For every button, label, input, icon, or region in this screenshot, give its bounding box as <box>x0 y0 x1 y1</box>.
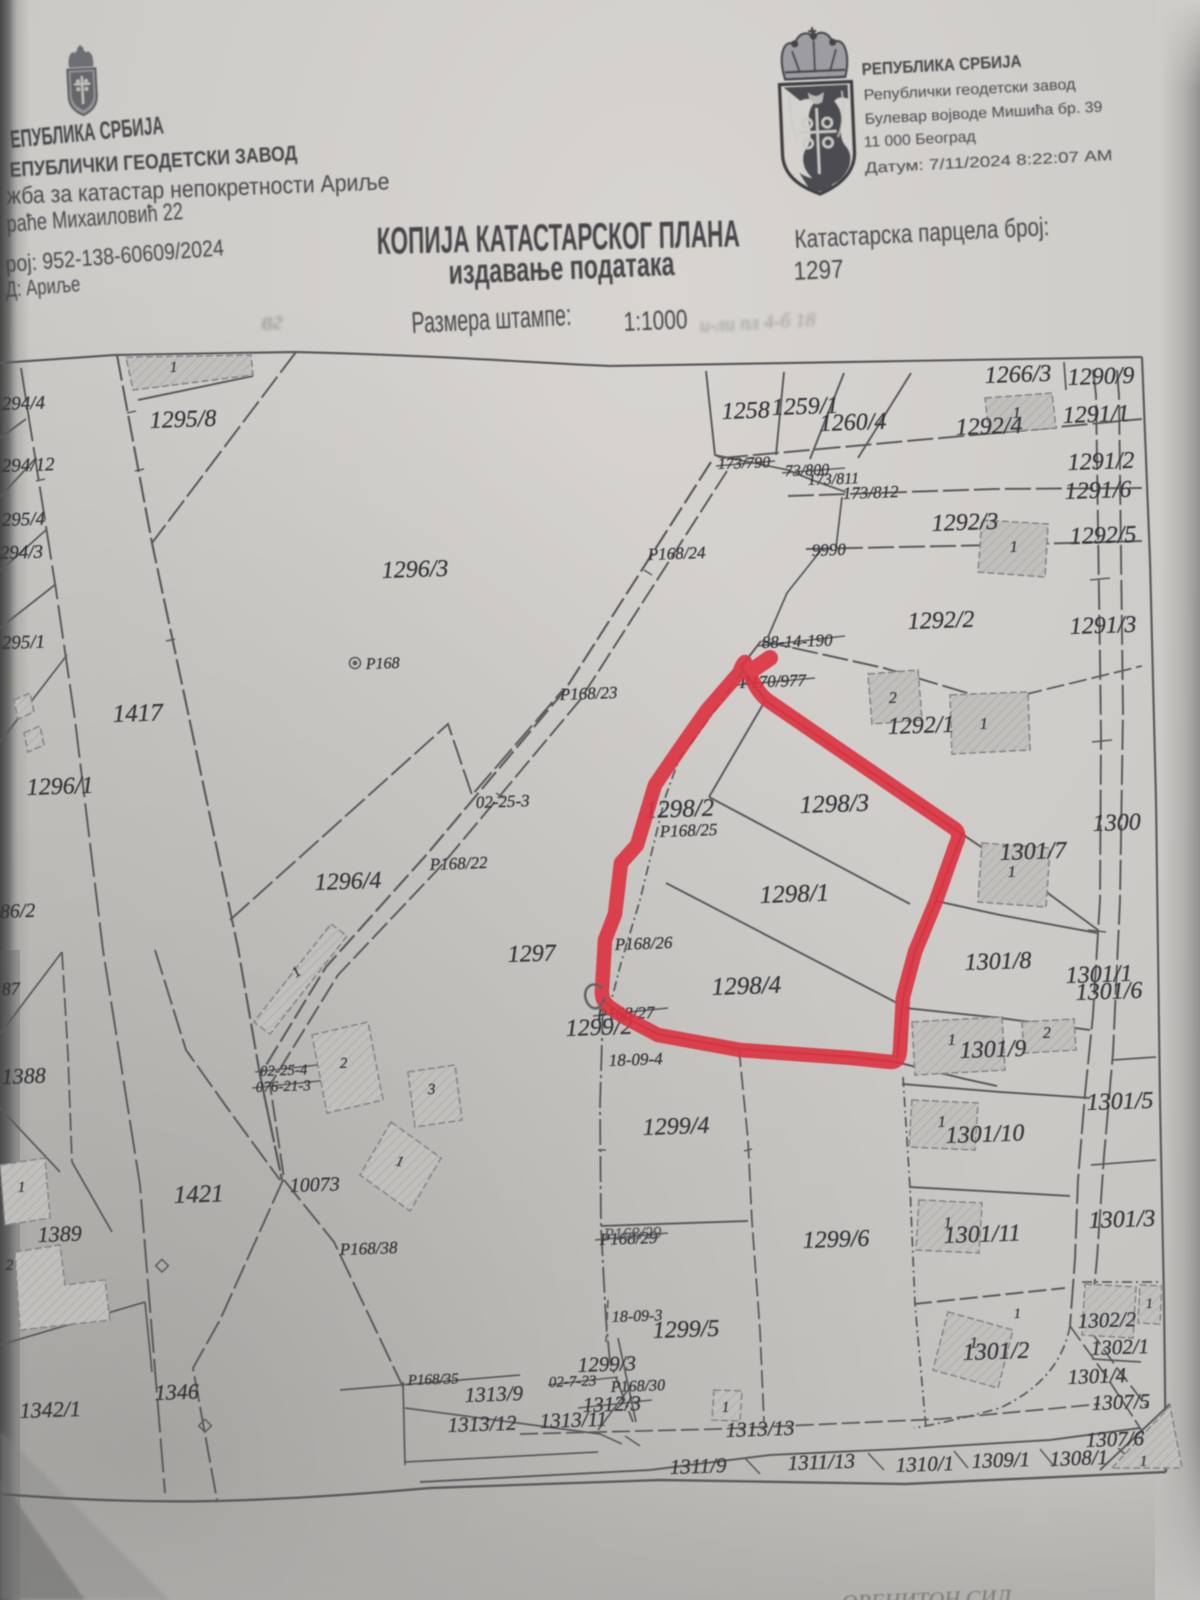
svg-text:2: 2 <box>1043 1025 1052 1042</box>
svg-text:1292/3: 1292/3 <box>931 509 999 537</box>
svg-text:173/812: 173/812 <box>842 482 899 503</box>
svg-text:1313/13: 1313/13 <box>725 1416 795 1442</box>
svg-text:P168/22: P168/22 <box>428 853 488 874</box>
svg-text:1260/4: 1260/4 <box>819 409 887 437</box>
svg-text:1301/6: 1301/6 <box>1075 978 1143 1006</box>
svg-text:1313/9: 1313/9 <box>464 1381 524 1407</box>
svg-text:294/4: 294/4 <box>1 392 45 415</box>
svg-text:02-25-4: 02-25-4 <box>260 1062 309 1080</box>
svg-text:1389: 1389 <box>37 1220 82 1247</box>
svg-text:1: 1 <box>970 1335 979 1352</box>
svg-text:1297: 1297 <box>507 940 557 968</box>
svg-text:295/1: 295/1 <box>1 631 45 653</box>
svg-text:1:1000: 1:1000 <box>623 304 688 337</box>
svg-text:2: 2 <box>889 690 898 707</box>
svg-text:1299/6: 1299/6 <box>802 1226 870 1254</box>
svg-text:1291/2: 1291/2 <box>1067 448 1135 476</box>
svg-text:1301/7: 1301/7 <box>999 838 1068 866</box>
svg-text:1291/3: 1291/3 <box>1069 612 1137 640</box>
svg-text:1301/5: 1301/5 <box>1086 1088 1154 1116</box>
svg-text:1298/4: 1298/4 <box>711 972 781 1001</box>
svg-text:1301/3: 1301/3 <box>1088 1206 1156 1234</box>
svg-text:1292/2: 1292/2 <box>907 607 975 635</box>
svg-text:1301/10: 1301/10 <box>945 1120 1025 1149</box>
svg-text:1: 1 <box>1014 1307 1022 1322</box>
svg-text:295/4: 295/4 <box>1 508 45 531</box>
svg-text:1: 1 <box>938 1114 947 1131</box>
svg-text:88-14-190: 88-14-190 <box>761 631 833 652</box>
svg-text:1309/1: 1309/1 <box>971 1447 1030 1473</box>
svg-text:P168/29: P168/29 <box>602 1223 662 1244</box>
svg-text:1311/13: 1311/13 <box>787 1449 855 1475</box>
svg-text:9990: 9990 <box>811 540 846 560</box>
svg-text:86/2: 86/2 <box>0 900 36 923</box>
svg-text:2: 2 <box>6 1258 15 1274</box>
svg-text:1290/9: 1290/9 <box>1067 363 1135 391</box>
svg-text:1388: 1388 <box>1 1062 46 1089</box>
svg-text:173/790: 173/790 <box>718 454 771 473</box>
svg-text:1: 1 <box>1140 1454 1148 1470</box>
svg-text:1: 1 <box>1146 1297 1154 1312</box>
svg-text:P168/26: P168/26 <box>613 933 673 954</box>
svg-text:1292/5: 1292/5 <box>1069 522 1137 550</box>
svg-text:P168/38: P168/38 <box>338 1238 398 1259</box>
svg-text:076-21-3: 076-21-3 <box>256 1078 312 1096</box>
svg-text:1301/4: 1301/4 <box>1067 1363 1127 1389</box>
svg-text:3: 3 <box>427 1082 436 1098</box>
svg-text:1299/4: 1299/4 <box>642 1113 710 1141</box>
svg-text:1296/3: 1296/3 <box>381 556 449 584</box>
svg-text:18-09-4: 18-09-4 <box>608 1049 663 1070</box>
svg-text:02-25-3: 02-25-3 <box>475 791 529 812</box>
svg-text:1: 1 <box>722 1400 730 1416</box>
svg-text:1307/6: 1307/6 <box>1085 1426 1145 1452</box>
svg-text:294/12: 294/12 <box>1 454 55 477</box>
svg-text:1: 1 <box>1008 864 1017 881</box>
svg-text:1301/11: 1301/11 <box>943 1220 1021 1249</box>
svg-text:1307/5: 1307/5 <box>1091 1389 1150 1415</box>
svg-text:1302/2: 1302/2 <box>1077 1307 1137 1333</box>
svg-text:1: 1 <box>1010 539 1019 556</box>
svg-text:1417: 1417 <box>112 699 164 728</box>
svg-text:1: 1 <box>944 1215 953 1232</box>
svg-text:1: 1 <box>948 1032 957 1049</box>
svg-text:1295/8: 1295/8 <box>149 406 217 434</box>
svg-text:10073: 10073 <box>289 1173 340 1197</box>
svg-text:1301/8: 1301/8 <box>964 948 1032 976</box>
svg-text:1421: 1421 <box>173 1180 224 1209</box>
svg-text:1298/1: 1298/1 <box>759 880 829 909</box>
svg-text:1266/3: 1266/3 <box>984 361 1052 389</box>
svg-text:1: 1 <box>18 1180 26 1196</box>
svg-text:1292/1: 1292/1 <box>887 712 955 740</box>
svg-text:1310/1: 1310/1 <box>895 1451 954 1477</box>
svg-text:P168/35: P168/35 <box>407 1371 460 1389</box>
svg-text:294/3: 294/3 <box>0 541 43 563</box>
svg-text:1311/9: 1311/9 <box>669 1453 727 1479</box>
svg-text:1300: 1300 <box>1092 809 1141 837</box>
svg-text:1302/1: 1302/1 <box>1090 1334 1149 1360</box>
svg-text:1296/1: 1296/1 <box>26 773 94 801</box>
svg-text:1299/3: 1299/3 <box>577 1351 636 1377</box>
svg-text:1346: 1346 <box>154 1378 199 1405</box>
svg-text:2: 2 <box>340 1056 349 1072</box>
svg-text:1342/1: 1342/1 <box>19 1396 81 1423</box>
svg-text:1291/6: 1291/6 <box>1064 477 1132 505</box>
svg-text:1258: 1258 <box>721 397 770 425</box>
svg-text:1: 1 <box>170 360 178 376</box>
svg-text:вг: вг <box>260 306 283 336</box>
svg-text:P168/24: P168/24 <box>646 543 706 564</box>
svg-text:P168: P168 <box>365 655 400 673</box>
svg-text:1297: 1297 <box>793 254 844 286</box>
svg-text:1291/1: 1291/1 <box>1062 401 1130 429</box>
svg-text:1296/4: 1296/4 <box>314 868 382 896</box>
svg-text:1301/9: 1301/9 <box>959 1036 1027 1064</box>
svg-text:1: 1 <box>980 716 989 733</box>
svg-text:18-09-3: 18-09-3 <box>612 1307 663 1326</box>
svg-text:1313/12: 1313/12 <box>447 1411 517 1437</box>
svg-text:P168/23: P168/23 <box>558 683 617 704</box>
svg-text:1298/3: 1298/3 <box>799 790 869 819</box>
svg-text:1: 1 <box>1013 405 1022 422</box>
svg-text:1313/11: 1313/11 <box>539 1407 607 1433</box>
svg-text:87: 87 <box>1 978 21 999</box>
